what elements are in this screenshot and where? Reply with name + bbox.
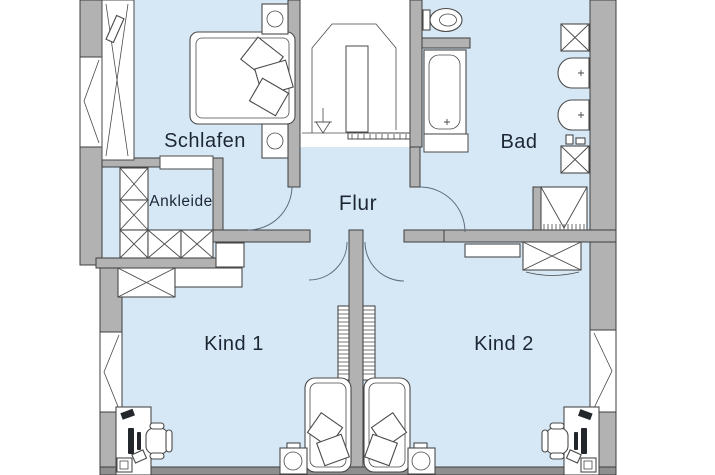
nightstand-bottom xyxy=(262,124,288,158)
dresser xyxy=(216,243,244,267)
nightstand-kind1 xyxy=(280,443,307,474)
label-schlafen: Schlafen xyxy=(164,130,246,152)
double-bed xyxy=(190,32,295,124)
bathroom-cabinet-top xyxy=(561,24,589,51)
window-kind2 xyxy=(590,330,616,412)
bathtub xyxy=(424,50,468,152)
label-flur: Flur xyxy=(339,192,377,215)
washbasin-1 xyxy=(558,58,589,88)
wall-bad-door-stub xyxy=(410,147,420,187)
desk-kind2 xyxy=(564,407,599,475)
shower xyxy=(541,187,587,230)
shelf-wall-kind2 xyxy=(363,306,375,380)
wall-wc-niche xyxy=(422,38,470,48)
sideboard-kind2 xyxy=(465,244,520,257)
single-bed-kind1 xyxy=(305,378,351,472)
wall-ankleide-kind1 xyxy=(96,258,223,268)
label-bad: Bad xyxy=(500,131,537,153)
shelf-kind1 xyxy=(175,268,242,287)
window-schlafen xyxy=(80,57,102,147)
wall-flur-kind1 xyxy=(213,230,310,242)
nightstand-top xyxy=(262,4,288,34)
wardrobe-kind2 xyxy=(523,242,581,276)
wardrobe-cell xyxy=(120,168,148,200)
window-kind1 xyxy=(100,332,122,412)
shower-partition xyxy=(533,187,541,230)
window-schlafen-top xyxy=(102,0,134,160)
washbasin-2 xyxy=(558,100,589,130)
floor-plan-page: Schlafen Ankleide Flur Bad Kind 1 Kind 2 xyxy=(0,0,715,475)
wall-stair-right xyxy=(410,0,422,147)
outer-wall-bottom-cut xyxy=(100,467,616,475)
single-bed-kind2 xyxy=(364,378,410,472)
floor-plan: Schlafen Ankleide Flur Bad Kind 1 Kind 2 xyxy=(0,0,715,475)
wardrobe-cell xyxy=(120,200,148,230)
shelf-wall-kind1 xyxy=(338,306,349,380)
wall-ankleide-flur xyxy=(213,158,223,232)
bathroom-cabinet-bottom xyxy=(561,146,589,173)
tub-step xyxy=(424,134,468,152)
opening-schlafen-ankleide xyxy=(160,156,213,169)
wardrobe-cell xyxy=(148,230,181,258)
wardrobe-cell xyxy=(120,230,148,258)
label-ankleide: Ankleide xyxy=(149,193,212,210)
label-kind2: Kind 2 xyxy=(474,333,534,355)
wc-toilet xyxy=(423,9,462,32)
wardrobe-cell xyxy=(181,230,213,258)
label-kind1: Kind 1 xyxy=(204,333,264,355)
wall-flur-kind2 xyxy=(404,230,444,242)
nightstand-kind2 xyxy=(408,443,435,474)
wall-bad-kind2 xyxy=(444,230,616,242)
